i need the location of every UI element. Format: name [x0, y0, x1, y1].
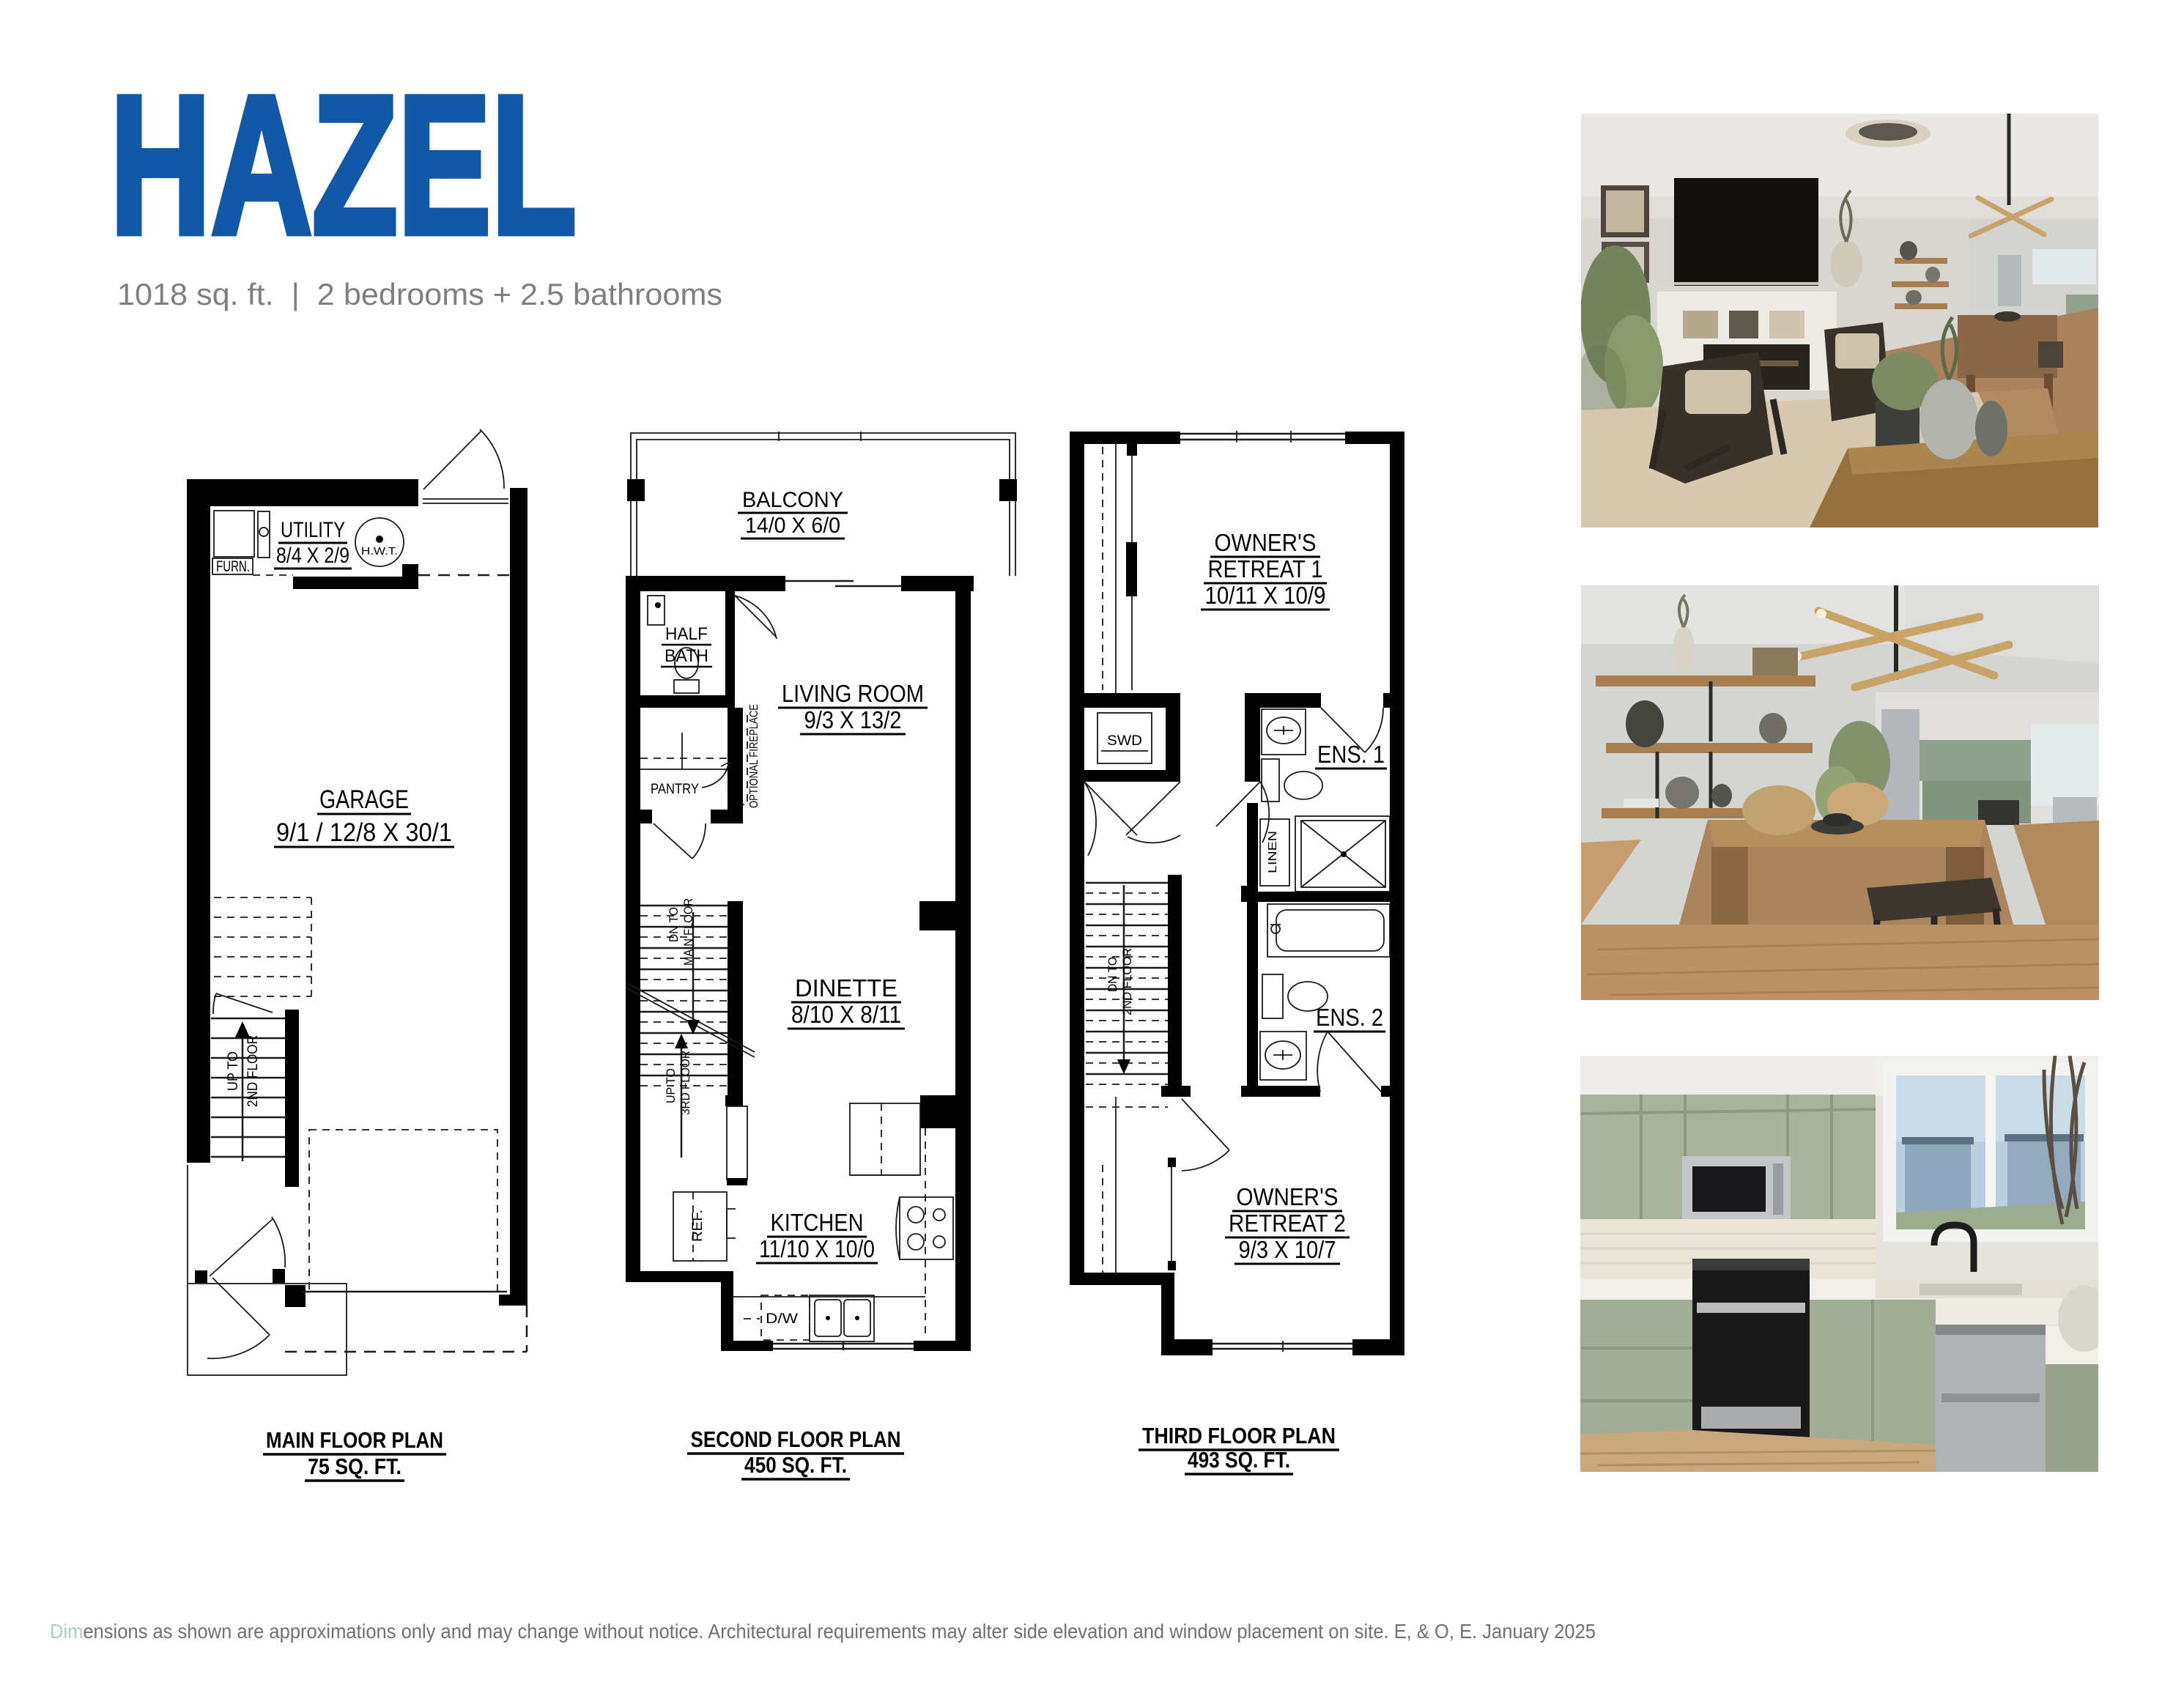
svg-text:THIRD FLOOR PLAN: THIRD FLOOR PLAN	[1142, 1423, 1336, 1448]
svg-text:3RD FLOOR: 3RD FLOOR	[678, 1051, 692, 1115]
svg-text:LIVING ROOM: LIVING ROOM	[782, 680, 924, 707]
svg-text:LINEN: LINEN	[1267, 831, 1279, 873]
svg-text:BATH: BATH	[665, 646, 708, 666]
svg-text:KITCHEN: KITCHEN	[771, 1209, 864, 1236]
svg-text:GARAGE: GARAGE	[319, 785, 409, 814]
svg-text:PANTRY: PANTRY	[651, 782, 699, 797]
svg-text:8/4 X 2/9: 8/4 X 2/9	[276, 544, 349, 568]
svg-text:OWNER'S: OWNER'S	[1215, 529, 1317, 556]
svg-text:UP TO: UP TO	[664, 1068, 678, 1103]
svg-text:HAZEL: HAZEL	[110, 55, 577, 275]
svg-text:RETREAT 2: RETREAT 2	[1229, 1210, 1346, 1237]
svg-text:9/3 X 10/7: 9/3 X 10/7	[1239, 1236, 1336, 1263]
svg-text:HALF: HALF	[665, 624, 708, 644]
svg-text:OPTIONAL FIREPLACE: OPTIONAL FIREPLACE	[748, 704, 760, 808]
svg-text:ENS. 2: ENS. 2	[1316, 1004, 1383, 1031]
svg-text:DN TO: DN TO	[667, 907, 681, 942]
svg-text:1018 sq. ft. | 2 bedrooms +: 1018 sq. ft. | 2 bedrooms + 2.5 bathroom…	[117, 277, 722, 311]
svg-text:14/0 X 6/0: 14/0 X 6/0	[745, 514, 840, 538]
svg-text:2ND FLOOR: 2ND FLOOR	[1120, 948, 1134, 1015]
svg-text:FURN.: FURN.	[216, 558, 250, 575]
svg-text:SWD: SWD	[1107, 733, 1142, 749]
svg-text:UP TO: UP TO	[226, 1051, 241, 1091]
svg-text:RETREAT 1: RETREAT 1	[1208, 555, 1323, 582]
svg-text:SECOND FLOOR PLAN: SECOND FLOOR PLAN	[691, 1426, 901, 1452]
svg-text:MAIN FLOOR: MAIN FLOOR	[681, 898, 695, 966]
svg-text:DINETTE: DINETTE	[795, 974, 897, 1002]
svg-text:9/3 X 13/2: 9/3 X 13/2	[804, 706, 902, 733]
svg-text:Dimensions as shown are approx: Dimensions as shown are approximations o…	[50, 1620, 1596, 1643]
svg-text:ENS. 1: ENS. 1	[1317, 741, 1385, 768]
svg-text:11/10 X 10/0: 11/10 X 10/0	[759, 1235, 875, 1262]
svg-text:450 SQ. FT.: 450 SQ. FT.	[744, 1452, 847, 1478]
svg-text:BALCONY: BALCONY	[742, 488, 843, 512]
svg-text:75 SQ. FT.: 75 SQ. FT.	[308, 1454, 401, 1479]
svg-text:493 SQ. FT.: 493 SQ. FT.	[1188, 1447, 1290, 1473]
svg-text:OWNER'S: OWNER'S	[1237, 1183, 1339, 1210]
svg-text:REF.: REF.	[690, 1210, 706, 1242]
svg-text:9/1 / 12/8 X 30/1: 9/1 / 12/8 X 30/1	[276, 818, 452, 847]
svg-text:DN TO: DN TO	[1106, 957, 1119, 992]
svg-text:H.W.T.: H.W.T.	[361, 545, 398, 558]
svg-text:D/W: D/W	[766, 1311, 798, 1327]
svg-text:MAIN FLOOR PLAN: MAIN FLOOR PLAN	[266, 1427, 443, 1453]
svg-text:10/11 X 10/9: 10/11 X 10/9	[1205, 582, 1326, 609]
svg-text:8/10 X 8/11: 8/10 X 8/11	[791, 1001, 901, 1028]
svg-text:2ND FLOOR: 2ND FLOOR	[245, 1035, 261, 1107]
svg-text:UTILITY: UTILITY	[281, 518, 345, 542]
